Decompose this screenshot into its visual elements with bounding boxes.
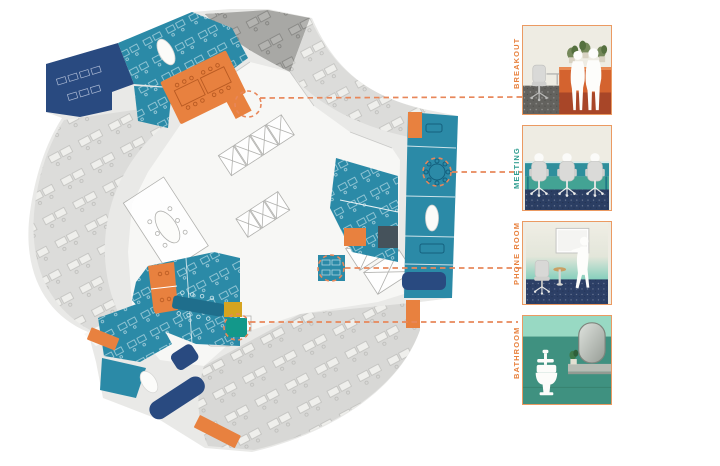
rust-floor [559, 92, 611, 114]
connector-breakout [260, 97, 522, 98]
panel-label-bathroom: BATHROOM [512, 327, 521, 379]
dark-slate-room [378, 226, 398, 248]
panel-label-phone-room: PHONE ROOM [512, 222, 521, 285]
counter [559, 67, 611, 92]
panel-bathroom: BATHROOM [522, 315, 612, 405]
orange-small-room [344, 228, 366, 246]
floor-plan [0, 0, 720, 466]
oval-table [426, 205, 439, 231]
counter [568, 364, 611, 374]
panel-phone-room: PHONE ROOM [522, 221, 612, 305]
panel-label-meeting: MEETING [512, 147, 521, 189]
panel-breakout: BREAKOUT [522, 25, 612, 115]
office-floorplan-infographic: BREAKOUT MEETING [0, 0, 720, 466]
orange-room-strip-top [408, 112, 422, 138]
meeting-room-illustration [523, 126, 611, 210]
zone-teal-right-strip [402, 112, 458, 328]
bathroom-on-plan [226, 318, 247, 337]
mirror-icon [579, 323, 605, 363]
panel-meeting: MEETING [522, 125, 612, 211]
phone-room-illustration [523, 222, 611, 304]
navy-banquette [402, 272, 446, 290]
breakout-room-illustration [523, 26, 611, 114]
orange-strip-right-edge [406, 300, 420, 328]
panel-label-breakout: BREAKOUT [512, 38, 521, 89]
bathroom-illustration [523, 316, 611, 404]
